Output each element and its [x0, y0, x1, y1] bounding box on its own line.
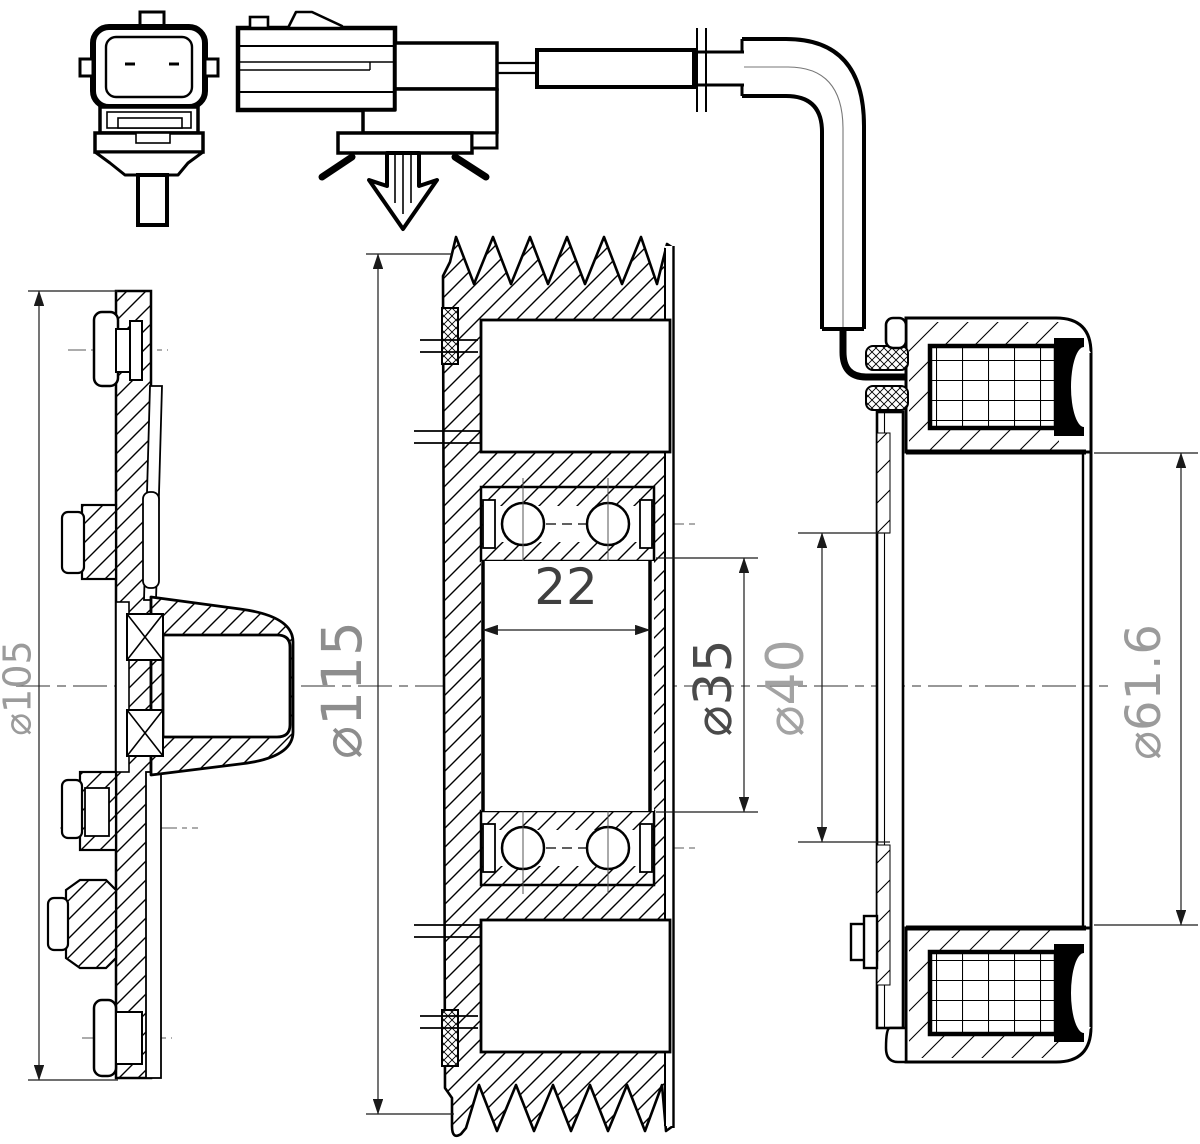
- rim-seal-bottom: [442, 1010, 458, 1066]
- pulley-cavity-bottom: [481, 920, 670, 1052]
- connector-front-view: [80, 12, 218, 225]
- rivet-bumper-top: [94, 312, 118, 386]
- dim-label-pulley-od: ⌀115: [310, 621, 374, 759]
- coil-lens-bottom: [1071, 953, 1097, 1033]
- connector-bottom-pin: [138, 175, 167, 225]
- side-latch-bump: [250, 17, 268, 28]
- connector-neck: [95, 152, 203, 175]
- coil-winding-bottom: [930, 952, 1056, 1034]
- connector-side-view: [238, 12, 497, 229]
- technical-drawing-canvas: ⌀105 ⌀115 22 ⌀35 ⌀40 ⌀61.6: [0, 0, 1200, 1144]
- cable-elbow-inner: [742, 96, 822, 329]
- side-housing-upper: [395, 43, 497, 89]
- anti-rotation-stud-post: [864, 916, 877, 968]
- connector-flange-notch: [136, 133, 170, 143]
- connector-mid-inner2: [118, 118, 182, 128]
- dim-label-coil-id: ⌀61.6: [1116, 624, 1172, 760]
- coil-winding-top: [930, 346, 1056, 428]
- cable-sleeve: [537, 50, 694, 87]
- coil-section-view: [851, 318, 1097, 1062]
- rivet-body-bottom: [116, 1012, 142, 1064]
- bearing-bottom-seal-left: [483, 824, 495, 872]
- clip-wing-right: [455, 157, 486, 177]
- connector-wing-right: [205, 59, 218, 76]
- rivet-bumper-bottom: [94, 1000, 116, 1076]
- spline-block-bottom: [127, 710, 163, 756]
- stud-block-4: [66, 880, 116, 968]
- clip-wing-left: [322, 157, 352, 177]
- spline-block-top: [127, 614, 163, 660]
- dim-label-hub-od: ⌀105: [0, 640, 40, 735]
- hub-front-view: [48, 291, 293, 1078]
- cable-elbow-outer: [742, 39, 864, 329]
- grommet-lip-upper: [866, 346, 908, 370]
- stud-block-2: [82, 505, 116, 579]
- rim-seal-top: [442, 308, 458, 364]
- stud-cap-2: [62, 512, 84, 573]
- connector-wing-left: [80, 59, 93, 76]
- stud-slot-3: [85, 788, 109, 836]
- grommet-lip-lower: [866, 386, 908, 410]
- cable-elbow-centerline: [744, 67, 843, 329]
- bearing-top: [481, 478, 654, 570]
- dim-label-hub-hole: ⌀40: [756, 639, 816, 736]
- bracket-right-step: [472, 133, 497, 148]
- housing-foot: [886, 1028, 906, 1062]
- mounting-plate-hatch-lower: [877, 845, 890, 985]
- side-body: [238, 28, 395, 110]
- housing-top-tab: [886, 318, 906, 348]
- side-latch-hook: [288, 12, 342, 28]
- clutch-assembly-drawing: ⌀105 ⌀115 22 ⌀35 ⌀40 ⌀61.6: [0, 0, 1200, 1144]
- bearing-bottom: [481, 802, 654, 894]
- bearing-bottom-seal-right: [640, 824, 652, 872]
- mounting-plate-hatch-upper: [877, 433, 890, 533]
- bearing-top-seal-left: [483, 500, 495, 548]
- spring-retainer: [143, 492, 159, 588]
- stud-cap-3: [62, 780, 82, 838]
- mount-bracket: [338, 133, 472, 153]
- hub-boss-bore: [163, 635, 290, 737]
- pulley-section-view: [414, 237, 674, 1136]
- pulley-cavity-top: [481, 320, 670, 452]
- bearing-top-seal-right: [640, 500, 652, 548]
- stud-cap-4: [48, 898, 68, 950]
- dim-label-bearing-bore: ⌀35: [684, 639, 744, 736]
- rivet-plate-top: [130, 321, 142, 380]
- coil-lens-top: [1071, 347, 1097, 427]
- connector-body-inner: [106, 37, 192, 97]
- dim-label-bearing-width: 22: [534, 558, 598, 616]
- disc-plate-strip: [146, 772, 161, 1078]
